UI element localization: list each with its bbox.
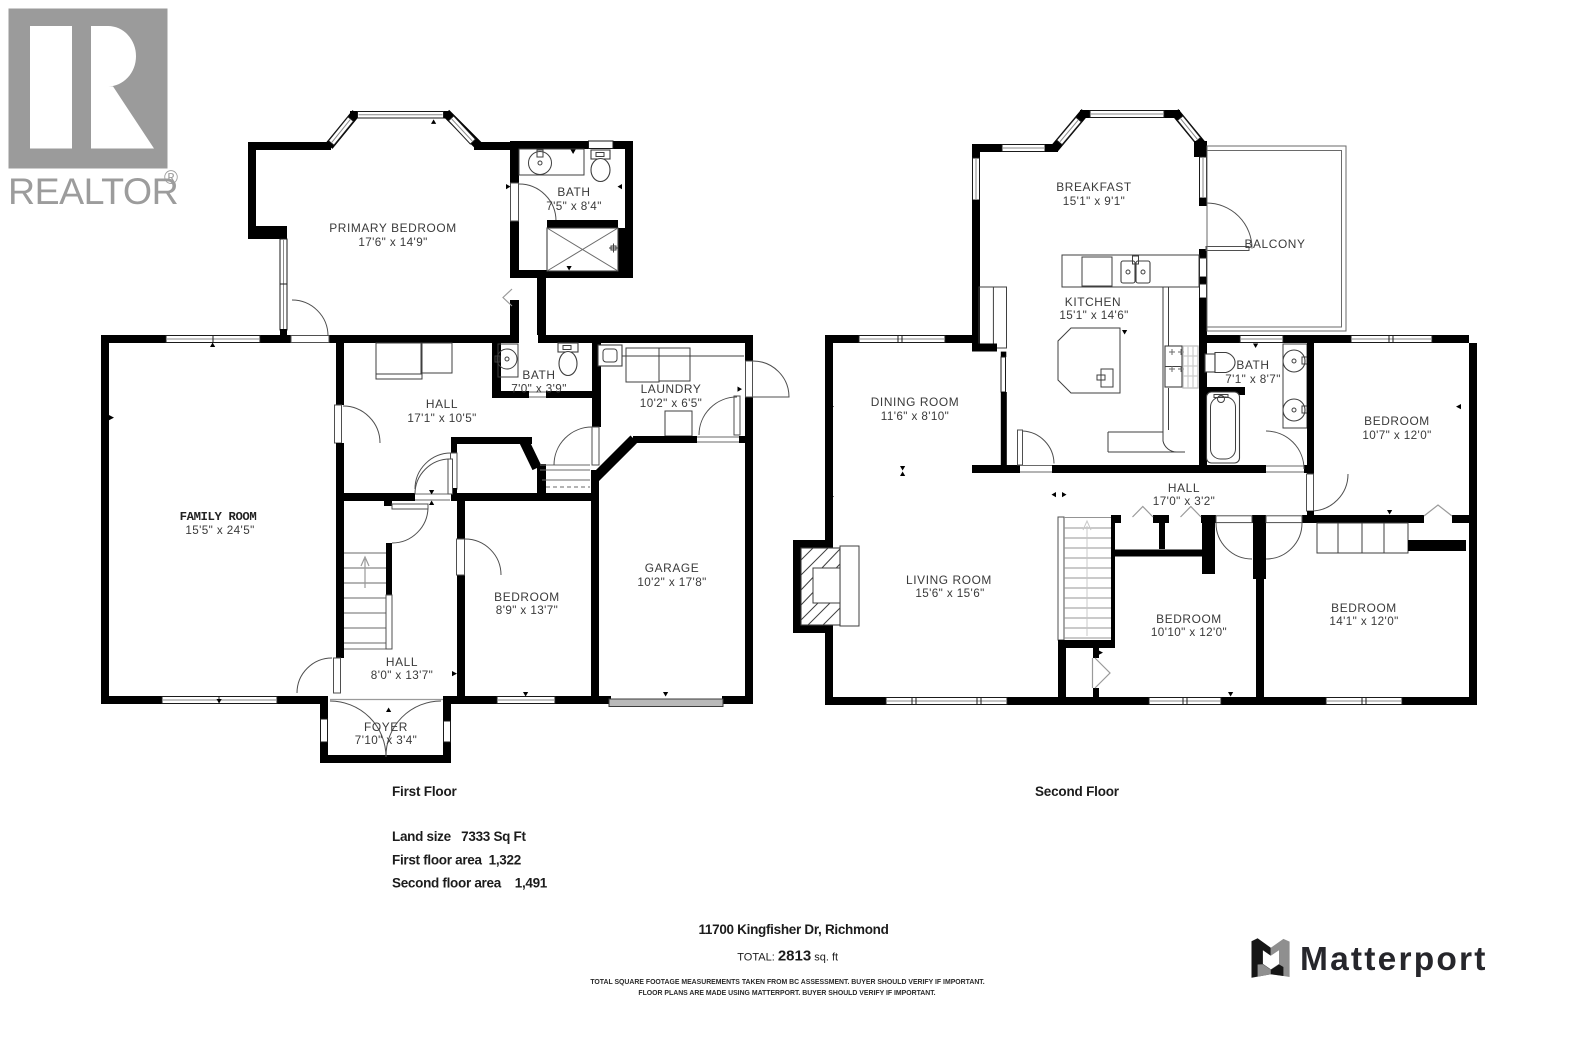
- svg-text:HALL: HALL: [386, 655, 418, 669]
- svg-text:LIVING ROOM: LIVING ROOM: [906, 573, 992, 587]
- svg-text:15'5" x 24'5": 15'5" x 24'5": [185, 524, 254, 537]
- svg-text:11'6" x 8'10": 11'6" x 8'10": [881, 410, 949, 423]
- svg-text:7'1" x 8'7": 7'1" x 8'7": [1225, 373, 1281, 386]
- svg-text:FOYER: FOYER: [364, 720, 408, 734]
- svg-text:10'2" x 6'5": 10'2" x 6'5": [640, 397, 702, 410]
- svg-text:FLOOR PLANS ARE MADE USING MAT: FLOOR PLANS ARE MADE USING MATTERPORT. B…: [638, 990, 935, 997]
- svg-text:PRIMARY BEDROOM: PRIMARY BEDROOM: [329, 221, 457, 235]
- svg-text:BEDROOM: BEDROOM: [494, 590, 560, 604]
- svg-text:GARAGE: GARAGE: [645, 561, 699, 575]
- svg-text:BATH: BATH: [1236, 358, 1269, 372]
- svg-text:8'9" x 13'7": 8'9" x 13'7": [496, 604, 558, 617]
- svg-text:BEDROOM: BEDROOM: [1331, 601, 1397, 615]
- svg-text:17'6" x 14'9": 17'6" x 14'9": [358, 236, 427, 249]
- svg-text:KITCHEN: KITCHEN: [1065, 295, 1121, 309]
- svg-text:REALTOR: REALTOR: [8, 170, 178, 212]
- svg-text:HALL: HALL: [426, 397, 458, 411]
- svg-text:BATH: BATH: [522, 368, 555, 382]
- svg-text:First floor area 1,322: First floor area 1,322: [392, 853, 521, 868]
- svg-text:15'6" x 15'6": 15'6" x 15'6": [915, 587, 984, 600]
- svg-text:DINING ROOM: DINING ROOM: [871, 395, 960, 409]
- svg-text:FAMILY ROOM: FAMILY ROOM: [180, 510, 257, 524]
- svg-text:15'1" x 14'6": 15'1" x 14'6": [1059, 309, 1128, 322]
- svg-text:17'1" x 10'5": 17'1" x 10'5": [407, 412, 476, 425]
- svg-text:10'2" x 17'8": 10'2" x 17'8": [637, 576, 706, 589]
- svg-text:10'7" x 12'0": 10'7" x 12'0": [1362, 429, 1431, 442]
- svg-text:BATH: BATH: [557, 185, 590, 199]
- svg-text:BEDROOM: BEDROOM: [1156, 612, 1222, 626]
- svg-text:7'10" x 3'4": 7'10" x 3'4": [355, 734, 417, 747]
- svg-text:HALL: HALL: [1168, 481, 1200, 495]
- svg-text:Land size 7333 Sq Ft: Land size 7333 Sq Ft: [392, 829, 526, 844]
- svg-text:10'10" x 12'0": 10'10" x 12'0": [1151, 626, 1227, 639]
- svg-text:7'5" x 8'4": 7'5" x 8'4": [546, 200, 602, 213]
- svg-text:LAUNDRY: LAUNDRY: [641, 382, 702, 396]
- svg-text:15'1" x 9'1": 15'1" x 9'1": [1063, 195, 1125, 208]
- svg-text:Second Floor: Second Floor: [1035, 784, 1120, 799]
- svg-text:TOTAL SQUARE FOOTAGE MEASUREME: TOTAL SQUARE FOOTAGE MEASUREMENTS TAKEN …: [590, 979, 984, 986]
- svg-text:Matterport: Matterport: [1300, 941, 1488, 978]
- svg-text:17'0" x 3'2": 17'0" x 3'2": [1153, 495, 1215, 508]
- svg-text:BEDROOM: BEDROOM: [1364, 414, 1430, 428]
- svg-text:8'0" x 13'7": 8'0" x 13'7": [371, 669, 433, 682]
- svg-text:BREAKFAST: BREAKFAST: [1056, 180, 1131, 194]
- svg-text:BALCONY: BALCONY: [1244, 237, 1305, 251]
- svg-text:®: ®: [164, 168, 178, 189]
- svg-text:7'0" x 3'9": 7'0" x 3'9": [511, 383, 567, 396]
- svg-text:Second floor area 1,491: Second floor area 1,491: [392, 876, 548, 891]
- svg-text:First Floor: First Floor: [392, 784, 457, 799]
- svg-text:14'1" x 12'0": 14'1" x 12'0": [1329, 615, 1398, 628]
- svg-text:11700 Kingfisher Dr, Richmond: 11700 Kingfisher Dr, Richmond: [698, 922, 888, 937]
